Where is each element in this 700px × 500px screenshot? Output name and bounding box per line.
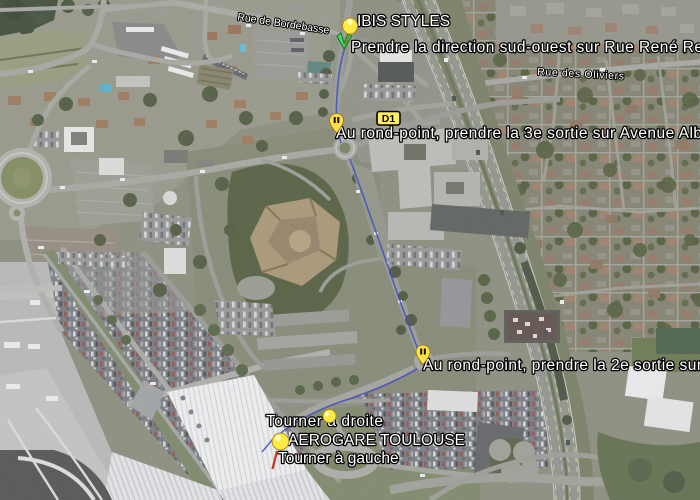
svg-text:Tourner à gauche: Tourner à gauche xyxy=(278,450,399,467)
svg-text:D1: D1 xyxy=(382,113,396,125)
svg-text:IBIS STYLES: IBIS STYLES xyxy=(357,13,450,30)
svg-text:Au rond-point, prendre la 2e s: Au rond-point, prendre la 2e sortie sur xyxy=(423,357,700,374)
svg-text:Prendre la direction sud-ouest: Prendre la direction sud-ouest sur Rue R… xyxy=(351,39,700,56)
svg-text:AEROGARE TOULOUSE: AEROGARE TOULOUSE xyxy=(288,432,465,449)
svg-text:Au rond-point, prendre la 3e s: Au rond-point, prendre la 3e sortie sur … xyxy=(336,125,700,142)
